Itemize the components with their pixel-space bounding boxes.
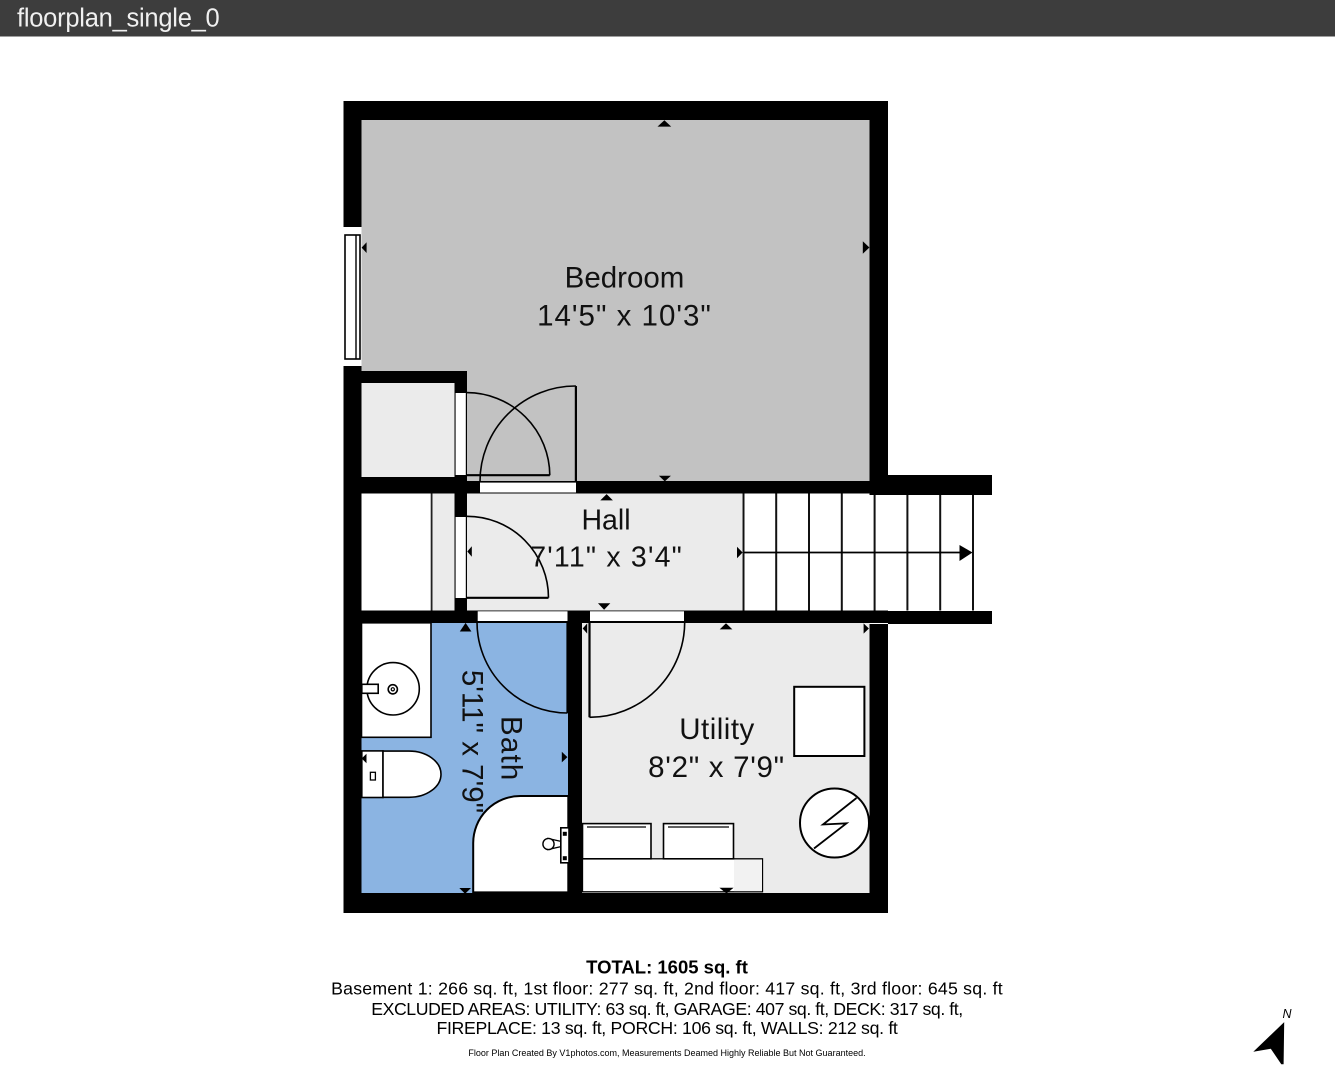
svg-text:EXCLUDED AREAS: UTILITY: 63 sq: EXCLUDED AREAS: UTILITY: 63 sq. ft, GARA… xyxy=(371,999,963,1019)
svg-text:N: N xyxy=(1282,1007,1292,1021)
svg-text:Hall: Hall xyxy=(581,505,630,537)
svg-text:Utility: Utility xyxy=(679,713,755,746)
svg-text:FIREPLACE: 13 sq. ft, PORCH: 1: FIREPLACE: 13 sq. ft, PORCH: 106 sq. ft,… xyxy=(436,1018,897,1038)
svg-text:Basement 1: 266 sq. ft, 1st fl: Basement 1: 266 sq. ft, 1st floor: 277 s… xyxy=(331,978,1003,998)
svg-text:Bath: Bath xyxy=(495,716,528,782)
svg-text:8'2" x 7'9": 8'2" x 7'9" xyxy=(648,751,785,784)
svg-text:floorplan_single_0: floorplan_single_0 xyxy=(17,5,220,33)
svg-text:7'11" x 3'4": 7'11" x 3'4" xyxy=(530,542,683,574)
svg-text:TOTAL: 1605 sq. ft: TOTAL: 1605 sq. ft xyxy=(586,957,748,978)
svg-text:Bedroom: Bedroom xyxy=(565,262,685,295)
svg-text:5'11" x 7'9": 5'11" x 7'9" xyxy=(456,670,489,813)
svg-text:14'5" x 10'3": 14'5" x 10'3" xyxy=(537,300,712,333)
svg-text:Floor Plan Created By V1photos: Floor Plan Created By V1photos.com, Meas… xyxy=(468,1048,865,1058)
